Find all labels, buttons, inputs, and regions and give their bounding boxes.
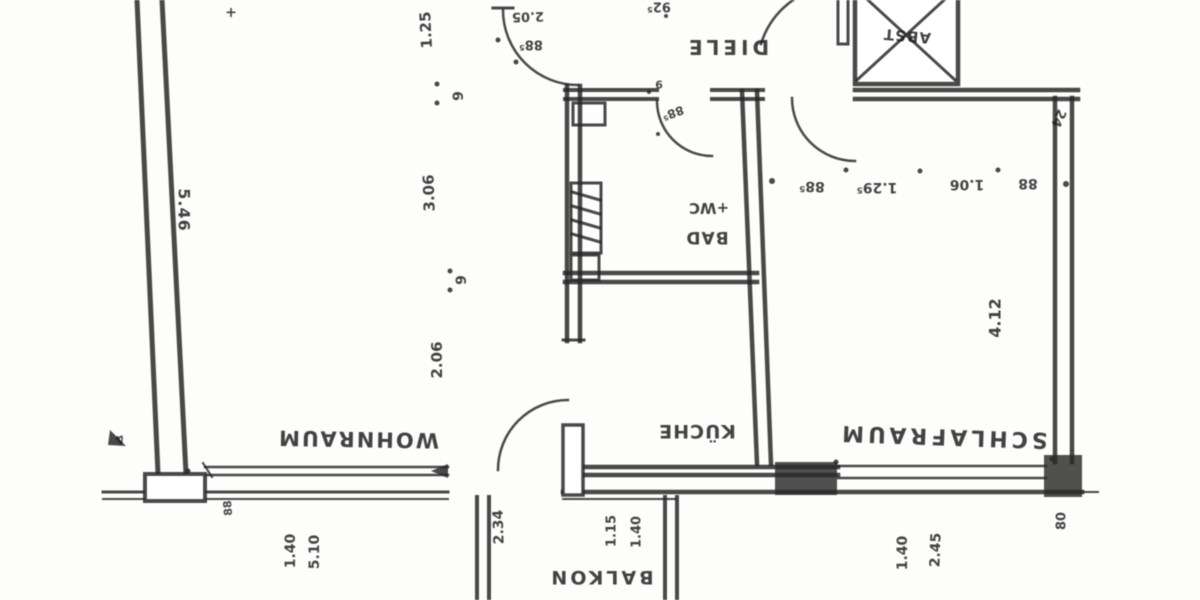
left-exterior-wall [137, 0, 186, 474]
bottom-exterior-wall [103, 455, 1098, 501]
dim-chain-1: 1.29⁵ [857, 179, 898, 195]
wall-pier-right [1044, 455, 1082, 497]
floor-plan-scan: WOHNRAUM KÜCHE SCHLAFRAUM DIELE +WC BAD … [0, 0, 1200, 600]
balcony-door [498, 400, 583, 495]
wall-pier-center [775, 462, 837, 495]
dim-depth-left: 5.46 [175, 188, 194, 231]
dim-win-kueche-1: 1.40 [630, 516, 645, 548]
dim-entry-len: 92⁵ [647, 0, 671, 14]
dim-win-wohn-1: 1.40 [283, 534, 299, 569]
room-label-balkon: BALKON [548, 566, 653, 588]
dim-chain-2: 1.06 [950, 176, 985, 192]
room-label-diele: DIELE [685, 35, 769, 59]
dim-win-schlaf-0: 2.45 [927, 532, 944, 567]
balcony-door-leaf [563, 425, 583, 495]
dim-win-kueche-0: 1.15 [605, 515, 620, 547]
dim-vchain-4: 2.06 [428, 341, 446, 378]
dim-vchain-0: 1.25 [416, 11, 436, 49]
schlafraum-top-wall [855, 90, 1078, 99]
right-exterior-wall [1055, 98, 1072, 462]
room-label-wc: +WC [689, 199, 729, 217]
room-label-wohnraum: WOHNRAUM [277, 426, 439, 453]
dim-chain-3: 88 [1018, 175, 1037, 191]
abst-door-leaf [838, 0, 848, 44]
bad-top-wall [565, 90, 763, 99]
wall-pier-left [145, 474, 205, 501]
room-label-kueche: KÜCHE [658, 420, 736, 442]
dim-chain-0: 88⁵ [799, 178, 825, 194]
dim-pier: 80 [1055, 512, 1070, 530]
sink-fixture [571, 255, 599, 280]
bad-fixtures [571, 103, 605, 280]
plan-linework [0, 0, 1200, 600]
dim-small-88: 88 [221, 500, 235, 516]
dim-vchain-3: 9 [454, 275, 470, 285]
dim-balkon-door: 2.34 [490, 509, 507, 544]
abst-door [761, 0, 848, 44]
dim-entry-clear: 2.05 [512, 8, 545, 24]
dim-plus-mark: + [225, 4, 237, 20]
abst-door-swing-arc [761, 0, 820, 44]
dim-depth-right: 4.12 [986, 298, 1005, 337]
dim-entry-door-width: 88⁵ [519, 37, 543, 52]
dim-vchain-1: 9 [451, 91, 467, 101]
balcony-door-swing-arc [498, 400, 568, 470]
scanned-drawing: WOHNRAUM KÜCHE SCHLAFRAUM DIELE +WC BAD … [0, 0, 1200, 600]
dim-win-wohn-0: 5.10 [307, 535, 323, 570]
dim-vchain-2: 3.06 [419, 174, 438, 212]
divider-wall [742, 91, 771, 464]
room-label-bad: BAD [685, 227, 728, 247]
schlafraum-door-swing-arc [792, 98, 855, 161]
dim-bad-door-extra: 9 [655, 78, 663, 91]
dim-win-schlaf-1: 1.40 [895, 536, 911, 571]
